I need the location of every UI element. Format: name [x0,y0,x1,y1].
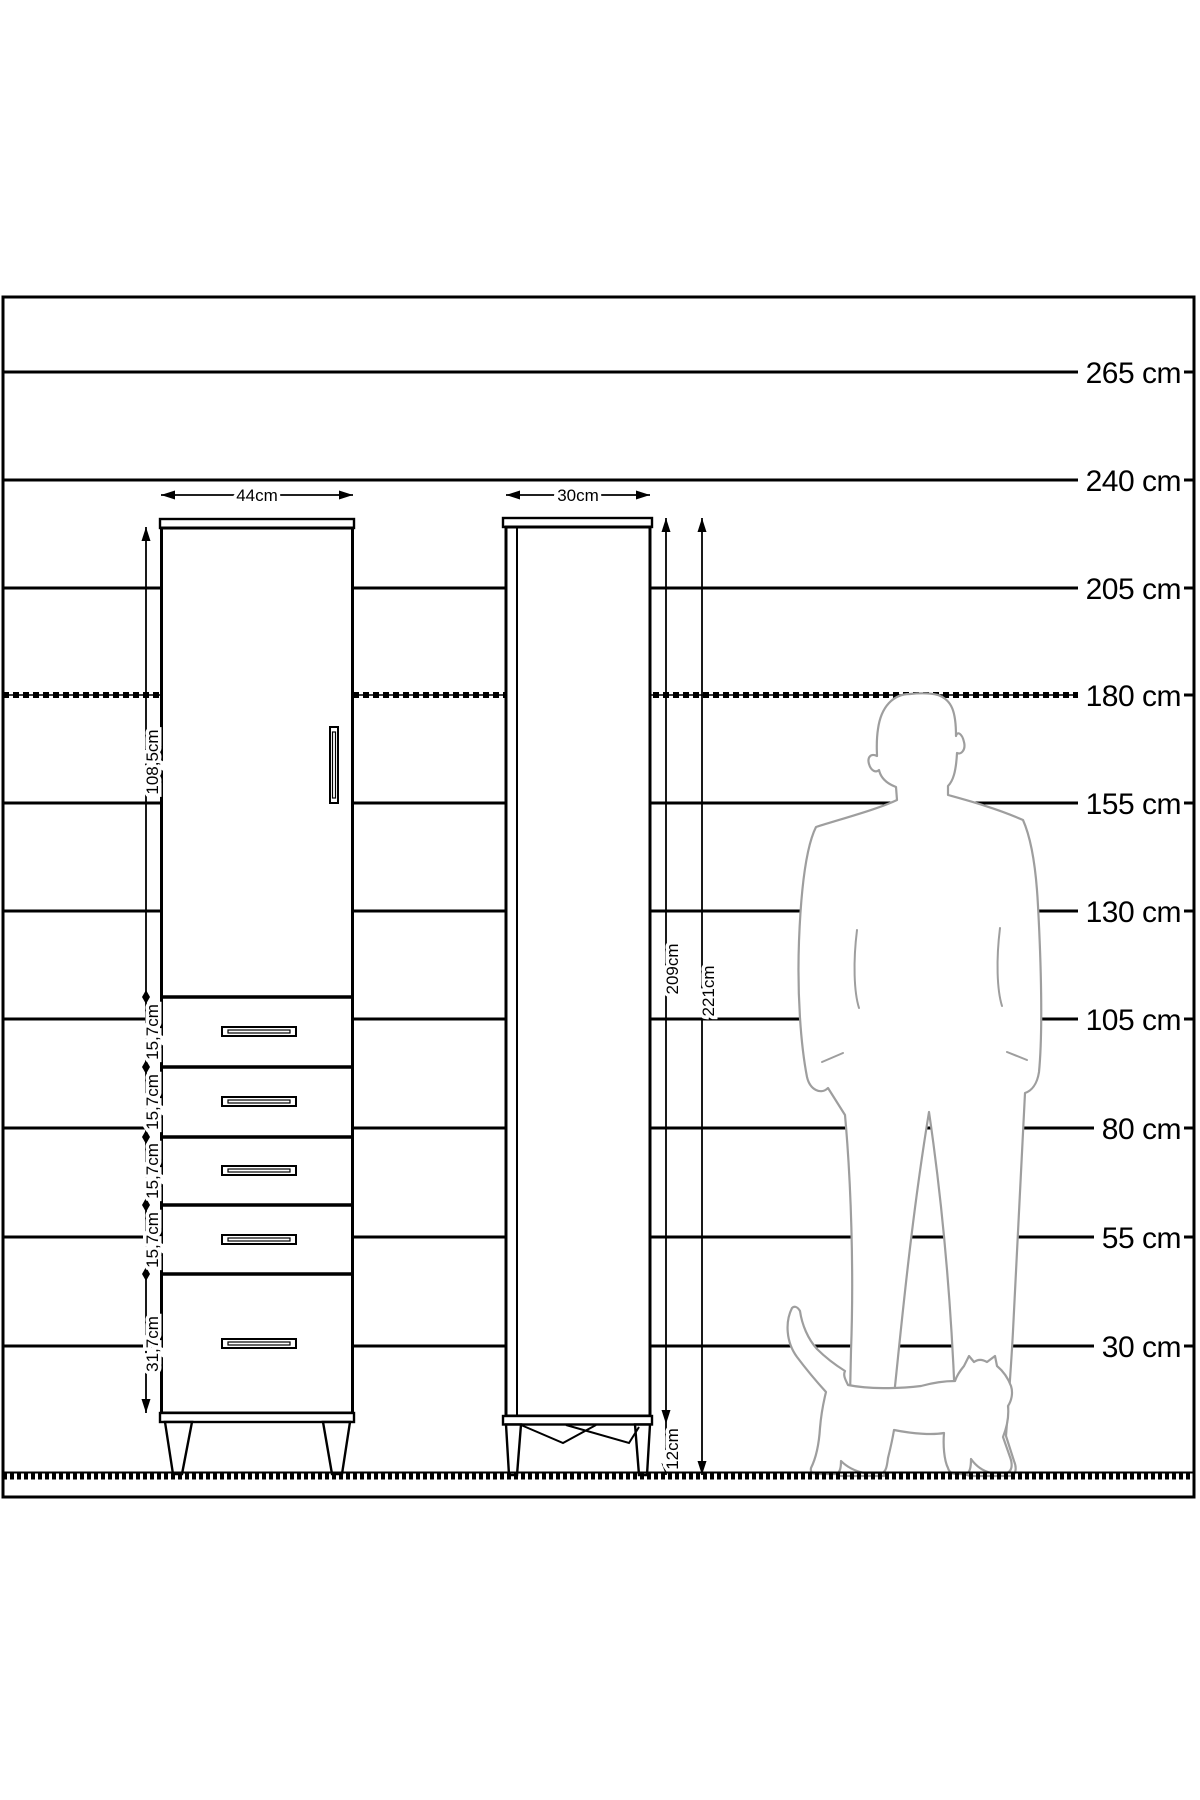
ruler-label-105: 105 cm [1086,1004,1181,1037]
dim-tick [142,1198,150,1212]
front-width-label: 44cm [236,486,278,505]
dim-tick [142,1060,150,1074]
ruler-label-55: 55 cm [1102,1222,1181,1255]
cabinet-side-bottom-board [503,1416,652,1425]
diagram-canvas: 265 cm 240 cm 205 cm 180 cm 155 cm 130 c… [0,0,1200,1800]
furniture-dimension-diagram: 265 cm 240 cm 205 cm 180 cm 155 cm 130 c… [0,0,1200,1800]
dim-arrow-right [636,491,650,500]
dim-tick [142,1130,150,1144]
side-leg-braces [521,1425,639,1443]
drawer-handle-3 [222,1166,296,1175]
front-leg-left [165,1422,192,1474]
ruler-label-180: 180 cm [1086,680,1181,713]
bottom-drawer-height-label: 31,7cm [143,1316,162,1372]
dim-arrow-left [506,491,520,500]
drawer-handle-4 [222,1235,296,1244]
dim-arrow-up [142,527,151,541]
ruler-label-130: 130 cm [1086,896,1181,929]
dim-arrow-down [662,1410,671,1424]
body-height-label: 209cm [663,943,682,994]
ruler-label-205: 205 cm [1086,573,1181,606]
front-leg-right [323,1422,350,1474]
dim-arrow-right [339,491,353,500]
drawer-height-label-1: 15,7cm [143,1004,162,1060]
dim-arrow-left [161,491,175,500]
drawer-handle-5 [222,1339,296,1348]
ruler-label-80: 80 cm [1102,1113,1181,1146]
total-height-label: 221cm [699,965,718,1016]
cabinet-front-view [160,519,354,1474]
dim-arrow-up [662,518,671,532]
ruler-label-155: 155 cm [1086,788,1181,821]
door-handle [330,727,338,803]
dim-arrow-up [698,518,707,532]
door-height-label: 108,5cm [143,729,162,794]
man-silhouette [798,693,1041,1476]
ruler-label-240: 240 cm [1086,465,1181,498]
side-leg-left [506,1425,521,1476]
cabinet-front-body [162,528,353,1413]
side-leg-right [635,1425,650,1476]
dim-tick [142,1267,150,1281]
man-outline [798,693,1041,1476]
drawer-height-label-2: 15,7cm [143,1074,162,1130]
drawer-height-label-4: 15,7cm [143,1212,162,1268]
drawer-handle-1 [222,1027,296,1036]
cabinet-side-view [503,518,652,1475]
cabinet-side-body [506,527,650,1416]
ruler-label-30: 30 cm [1102,1331,1181,1364]
cabinet-front-bottom-board [160,1413,354,1422]
dim-arrow-down [142,1399,151,1413]
drawer-height-label-3: 15,7cm [143,1143,162,1199]
dim-tick [142,990,150,1004]
ruler-label-265: 265 cm [1086,357,1181,390]
drawer-handle-2 [222,1097,296,1106]
side-depth-label: 30cm [557,486,599,505]
leg-height-label: 12cm [663,1428,682,1470]
